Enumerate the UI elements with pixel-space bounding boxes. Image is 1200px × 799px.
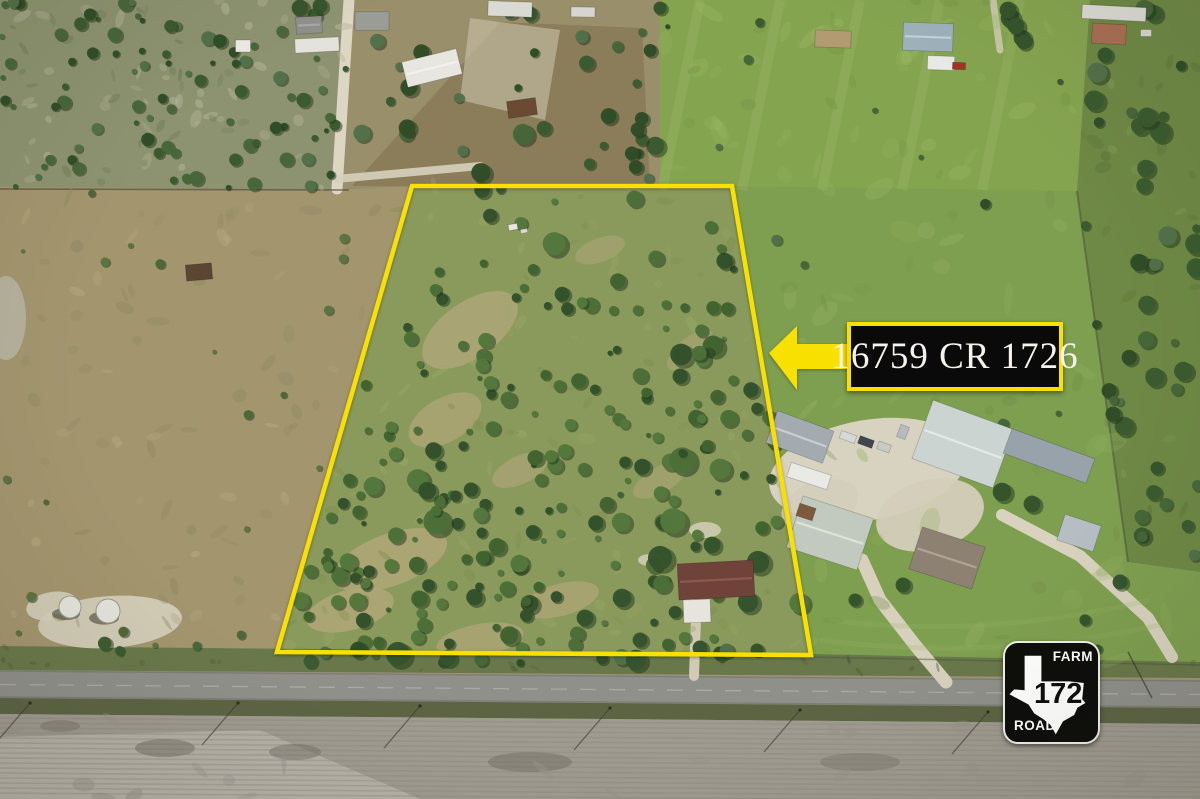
sign-farm-label: FARM <box>1053 649 1093 664</box>
sign-road-label: ROAD <box>1014 718 1056 733</box>
aerial-photo: 16759 CR 1726 FARM 1726 ROAD <box>0 0 1200 799</box>
address-text: 16759 CR 1726 <box>831 338 1078 375</box>
address-callout: 16759 CR 1726 <box>847 322 1063 391</box>
sign-route-number: 1726 <box>1034 678 1099 711</box>
farm-road-sign: FARM 1726 ROAD <box>1003 641 1100 744</box>
